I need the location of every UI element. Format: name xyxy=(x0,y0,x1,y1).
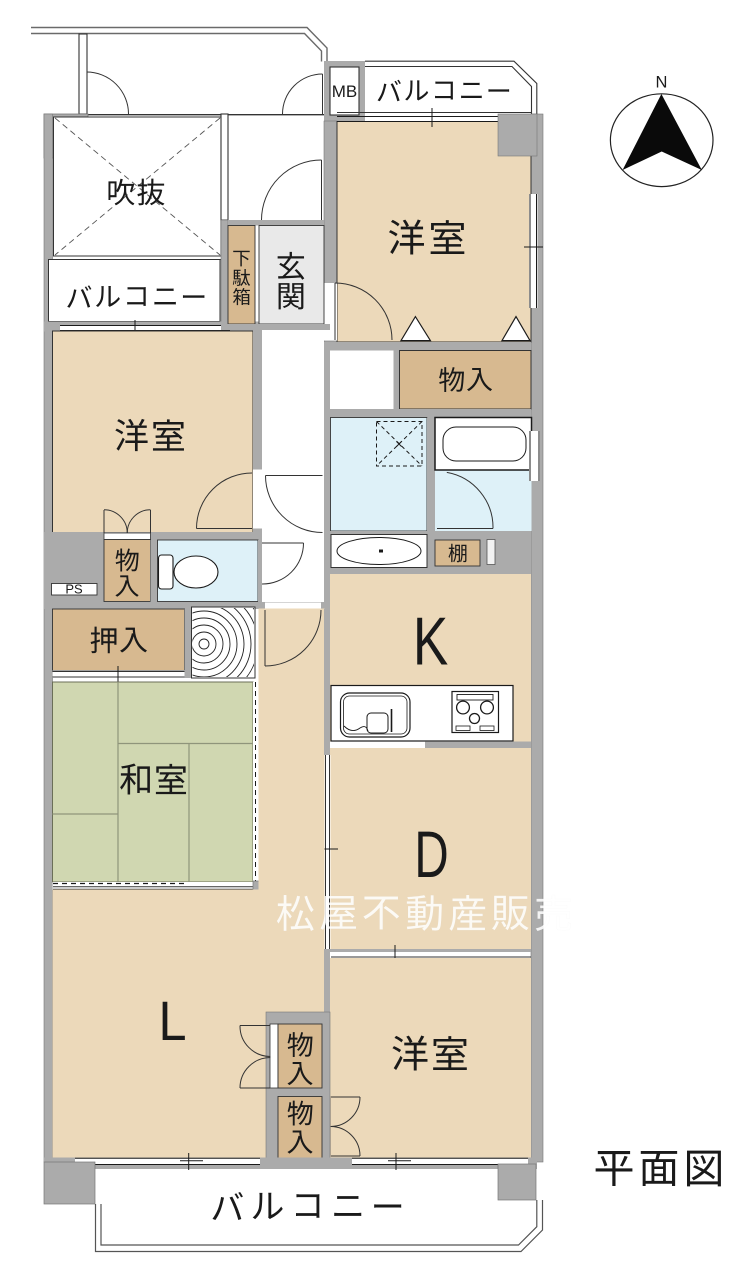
svg-text:MB: MB xyxy=(332,82,358,101)
svg-text:PS: PS xyxy=(65,582,83,597)
svg-text:D: D xyxy=(414,818,448,891)
svg-text:K: K xyxy=(413,603,448,679)
svg-text:N: N xyxy=(656,74,668,92)
svg-text:L: L xyxy=(158,991,186,1053)
